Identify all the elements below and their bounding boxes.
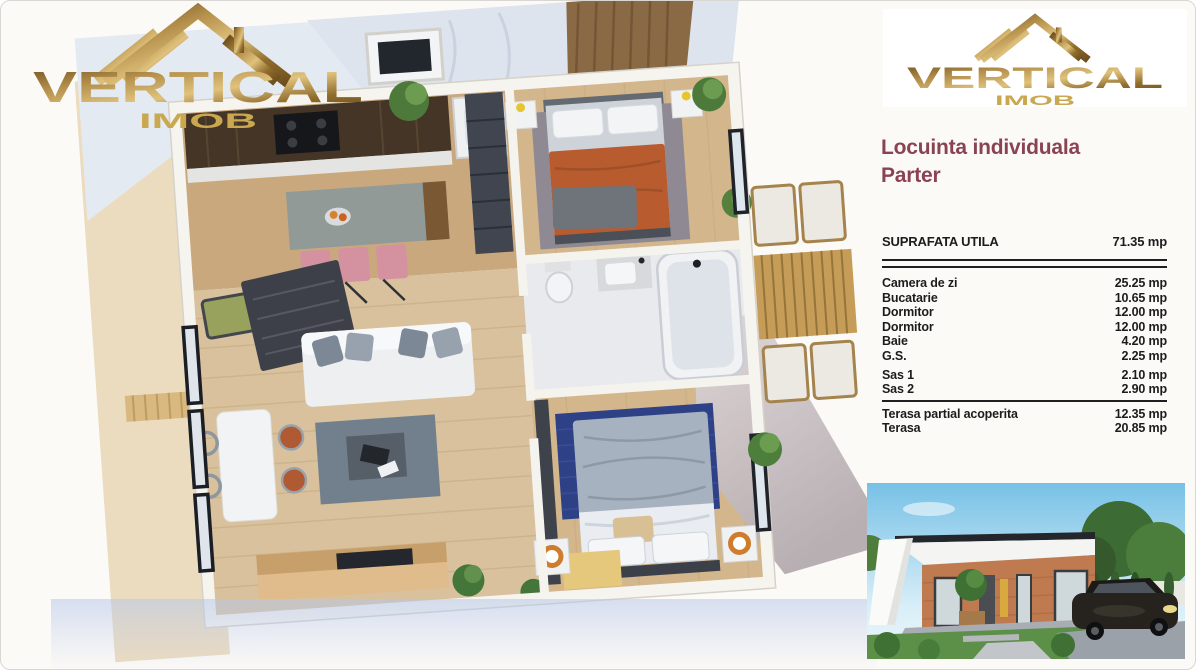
exterior-render-svg <box>867 483 1185 659</box>
table-double-rule <box>882 259 1167 268</box>
room-value: 25.25 mp <box>1115 276 1167 291</box>
brand-sub-text: IMOB <box>139 110 257 133</box>
brand-name-text: VERTICAL <box>33 63 363 112</box>
dining-chair-orange <box>278 425 304 451</box>
table-row: G.S. 2.25 mp <box>882 349 1167 364</box>
listing-title-line2: Parter <box>881 162 1181 190</box>
room-label: Dormitor <box>882 305 934 320</box>
room-value: 2.90 mp <box>1121 382 1167 397</box>
accent-panel <box>1000 579 1008 617</box>
bush <box>1051 633 1075 657</box>
window <box>1017 575 1031 625</box>
room-value: 2.10 mp <box>1121 368 1167 383</box>
room-label: Sas 2 <box>882 382 914 397</box>
terrace-chair <box>752 185 798 246</box>
brand-logo-box: VERTICAL IMOB <box>883 9 1187 107</box>
table-row: Dormitor 12.00 mp <box>882 305 1167 320</box>
bed1-throw <box>552 186 637 229</box>
toilet <box>545 271 573 303</box>
table-row-summary: SUPRAFATA UTILA 71.35 mp <box>882 234 1167 250</box>
bar-stool <box>338 247 370 283</box>
table-single-rule <box>882 400 1167 402</box>
table-row: Bucatarie 10.65 mp <box>882 291 1167 306</box>
room-label: Baie <box>882 334 908 349</box>
brand-logo-small: VERTICAL IMOB <box>883 9 1187 107</box>
area-table: SUPRAFATA UTILA 71.35 mp Camera de zi 25… <box>882 234 1167 436</box>
room-label: G.S. <box>882 349 906 364</box>
table-row: Terasa 20.85 mp <box>882 421 1167 436</box>
room-label: Bucatarie <box>882 291 938 306</box>
pillow <box>652 532 710 564</box>
summary-label: SUPRAFATA UTILA <box>882 234 999 250</box>
ground-shadow <box>51 599 877 670</box>
table-row: Terasa partial acoperita 12.35 mp <box>882 407 1167 422</box>
room-value: 12.00 mp <box>1115 305 1167 320</box>
room-value: 2.25 mp <box>1121 349 1167 364</box>
dining-table <box>216 409 278 522</box>
pillow <box>607 104 659 134</box>
terrace-chair <box>811 341 857 399</box>
table-row: Baie 4.20 mp <box>882 334 1167 349</box>
listing-sheet: VERTICAL IMOB VERTIC <box>0 0 1196 670</box>
room-value: 12.35 mp <box>1115 407 1167 422</box>
pillow <box>552 108 604 138</box>
room-value: 10.65 mp <box>1115 291 1167 306</box>
table-row: Sas 2 2.90 mp <box>882 382 1167 397</box>
sofa-pillow <box>397 328 428 359</box>
dining-chair-orange <box>281 468 307 494</box>
terrace-chair <box>800 181 846 242</box>
planter-box <box>959 611 985 626</box>
room-value: 4.20 mp <box>1121 334 1167 349</box>
room-label: Sas 1 <box>882 368 914 383</box>
room-label: Camera de zi <box>882 276 957 291</box>
brand-name-text: VERTICAL <box>907 62 1163 95</box>
exterior-house-photo <box>867 483 1185 659</box>
brand-sub-text: IMOB <box>995 92 1075 107</box>
cooktop <box>273 110 340 154</box>
table-row: Sas 1 2.10 mp <box>882 368 1167 383</box>
listing-title: Locuinta individuala Parter <box>881 134 1181 190</box>
floorplan-3d-render: VERTICAL IMOB <box>1 1 881 670</box>
floorplan-svg: VERTICAL IMOB <box>1 1 881 670</box>
table-row: Camera de zi 25.25 mp <box>882 276 1167 291</box>
room-value: 20.85 mp <box>1115 421 1167 436</box>
bar-stool <box>376 244 408 280</box>
bush <box>874 632 900 658</box>
room-label: Terasa <box>882 421 920 436</box>
ring-lamp <box>730 534 749 553</box>
room-label: Terasa partial acoperita <box>882 407 1018 422</box>
summary-value: 71.35 mp <box>1113 234 1167 250</box>
floor-mat <box>562 550 622 590</box>
roof-logo-icon <box>976 18 1088 60</box>
table-row: Dormitor 12.00 mp <box>882 320 1167 335</box>
terrace-chair <box>763 344 809 402</box>
sofa-pillow <box>344 332 374 362</box>
room-label: Dormitor <box>882 320 934 335</box>
listing-title-line1: Locuinta individuala <box>881 134 1181 162</box>
headlight <box>1163 605 1177 613</box>
room-value: 12.00 mp <box>1115 320 1167 335</box>
